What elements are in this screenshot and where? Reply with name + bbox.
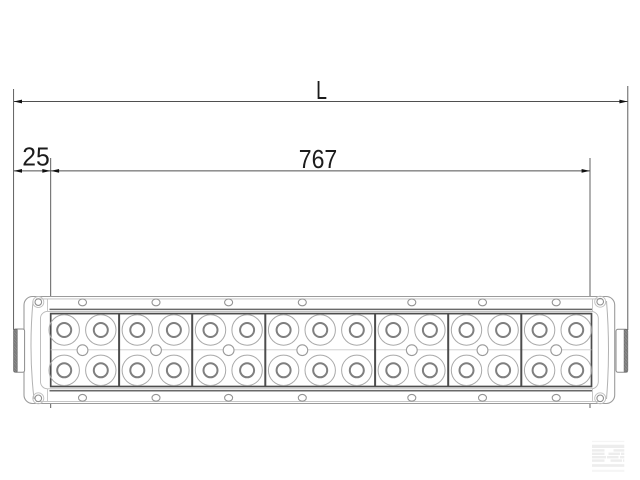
- svg-text:767: 767: [299, 146, 338, 174]
- svg-text:L: L: [316, 77, 327, 105]
- svg-text:25: 25: [22, 143, 50, 171]
